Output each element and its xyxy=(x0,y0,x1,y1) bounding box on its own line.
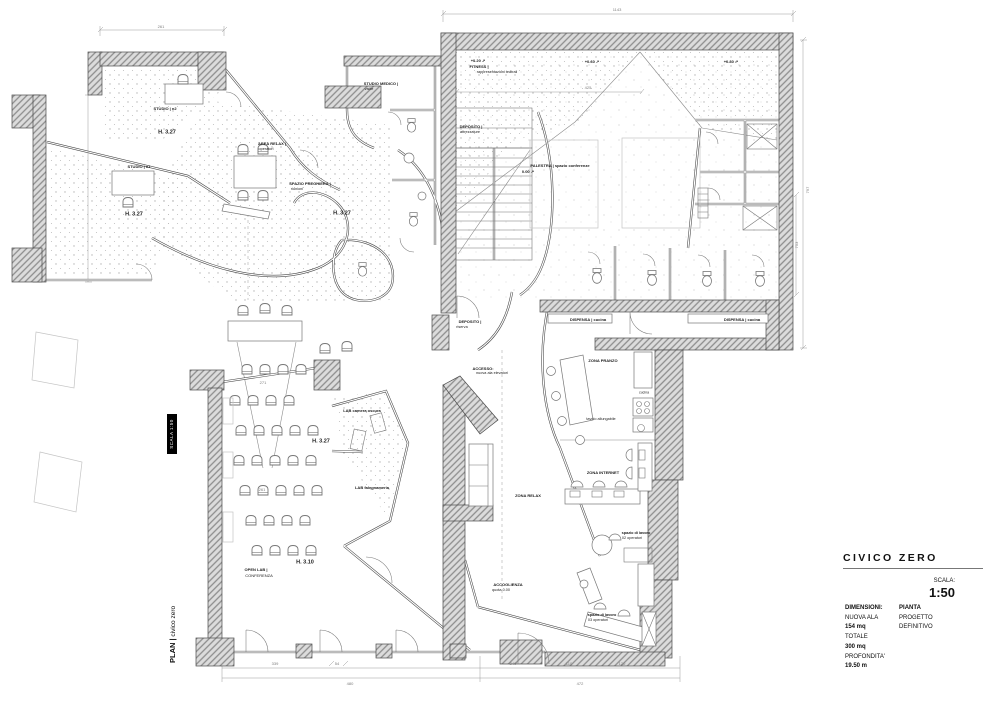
project-row: PROGETTO xyxy=(899,614,933,624)
plan-side-label-text: civico zero xyxy=(170,606,177,639)
scale-tag: SCALA 1:50 xyxy=(167,414,177,454)
title-block: CIVICO ZERO SCALA: 1:50 DIMENSIONI: NUOV… xyxy=(843,552,983,569)
scale-value: 1:50 xyxy=(929,585,955,600)
dimensions-header: DIMENSIONI: xyxy=(845,604,885,614)
dimensions-row: TOTALE xyxy=(845,633,885,643)
architectural-plan-page: STUDIO | n2H. 3.27STUDIO | n1H. 3.27AREA… xyxy=(0,0,992,702)
project-title: CIVICO ZERO xyxy=(843,552,983,569)
project-row-header: PIANTA xyxy=(899,604,933,614)
floor-plan-drawing xyxy=(0,0,992,702)
title-block-columns: DIMENSIONI: NUOVA ALA 154 mq TOTALE 300 … xyxy=(845,604,933,672)
scale-label: SCALA: xyxy=(929,578,955,584)
plan-side-label-bold: PLAN | xyxy=(168,638,177,663)
dimensions-column: DIMENSIONI: NUOVA ALA 154 mq TOTALE 300 … xyxy=(845,604,885,672)
scale-block: SCALA: 1:50 xyxy=(929,578,955,600)
plan-side-label: PLAN | civico zero xyxy=(168,601,178,663)
dimensions-row: 19.50 m xyxy=(845,662,885,672)
dimensions-row: 154 mq xyxy=(845,623,885,633)
dimensions-row: 300 mq xyxy=(845,643,885,653)
project-column: PIANTA PROGETTO DEFINITIVO xyxy=(899,604,933,672)
dimensions-row: NUOVA ALA xyxy=(845,614,885,624)
project-row: DEFINITIVO xyxy=(899,623,933,633)
dimensions-row: PROFONDITA' xyxy=(845,653,885,663)
